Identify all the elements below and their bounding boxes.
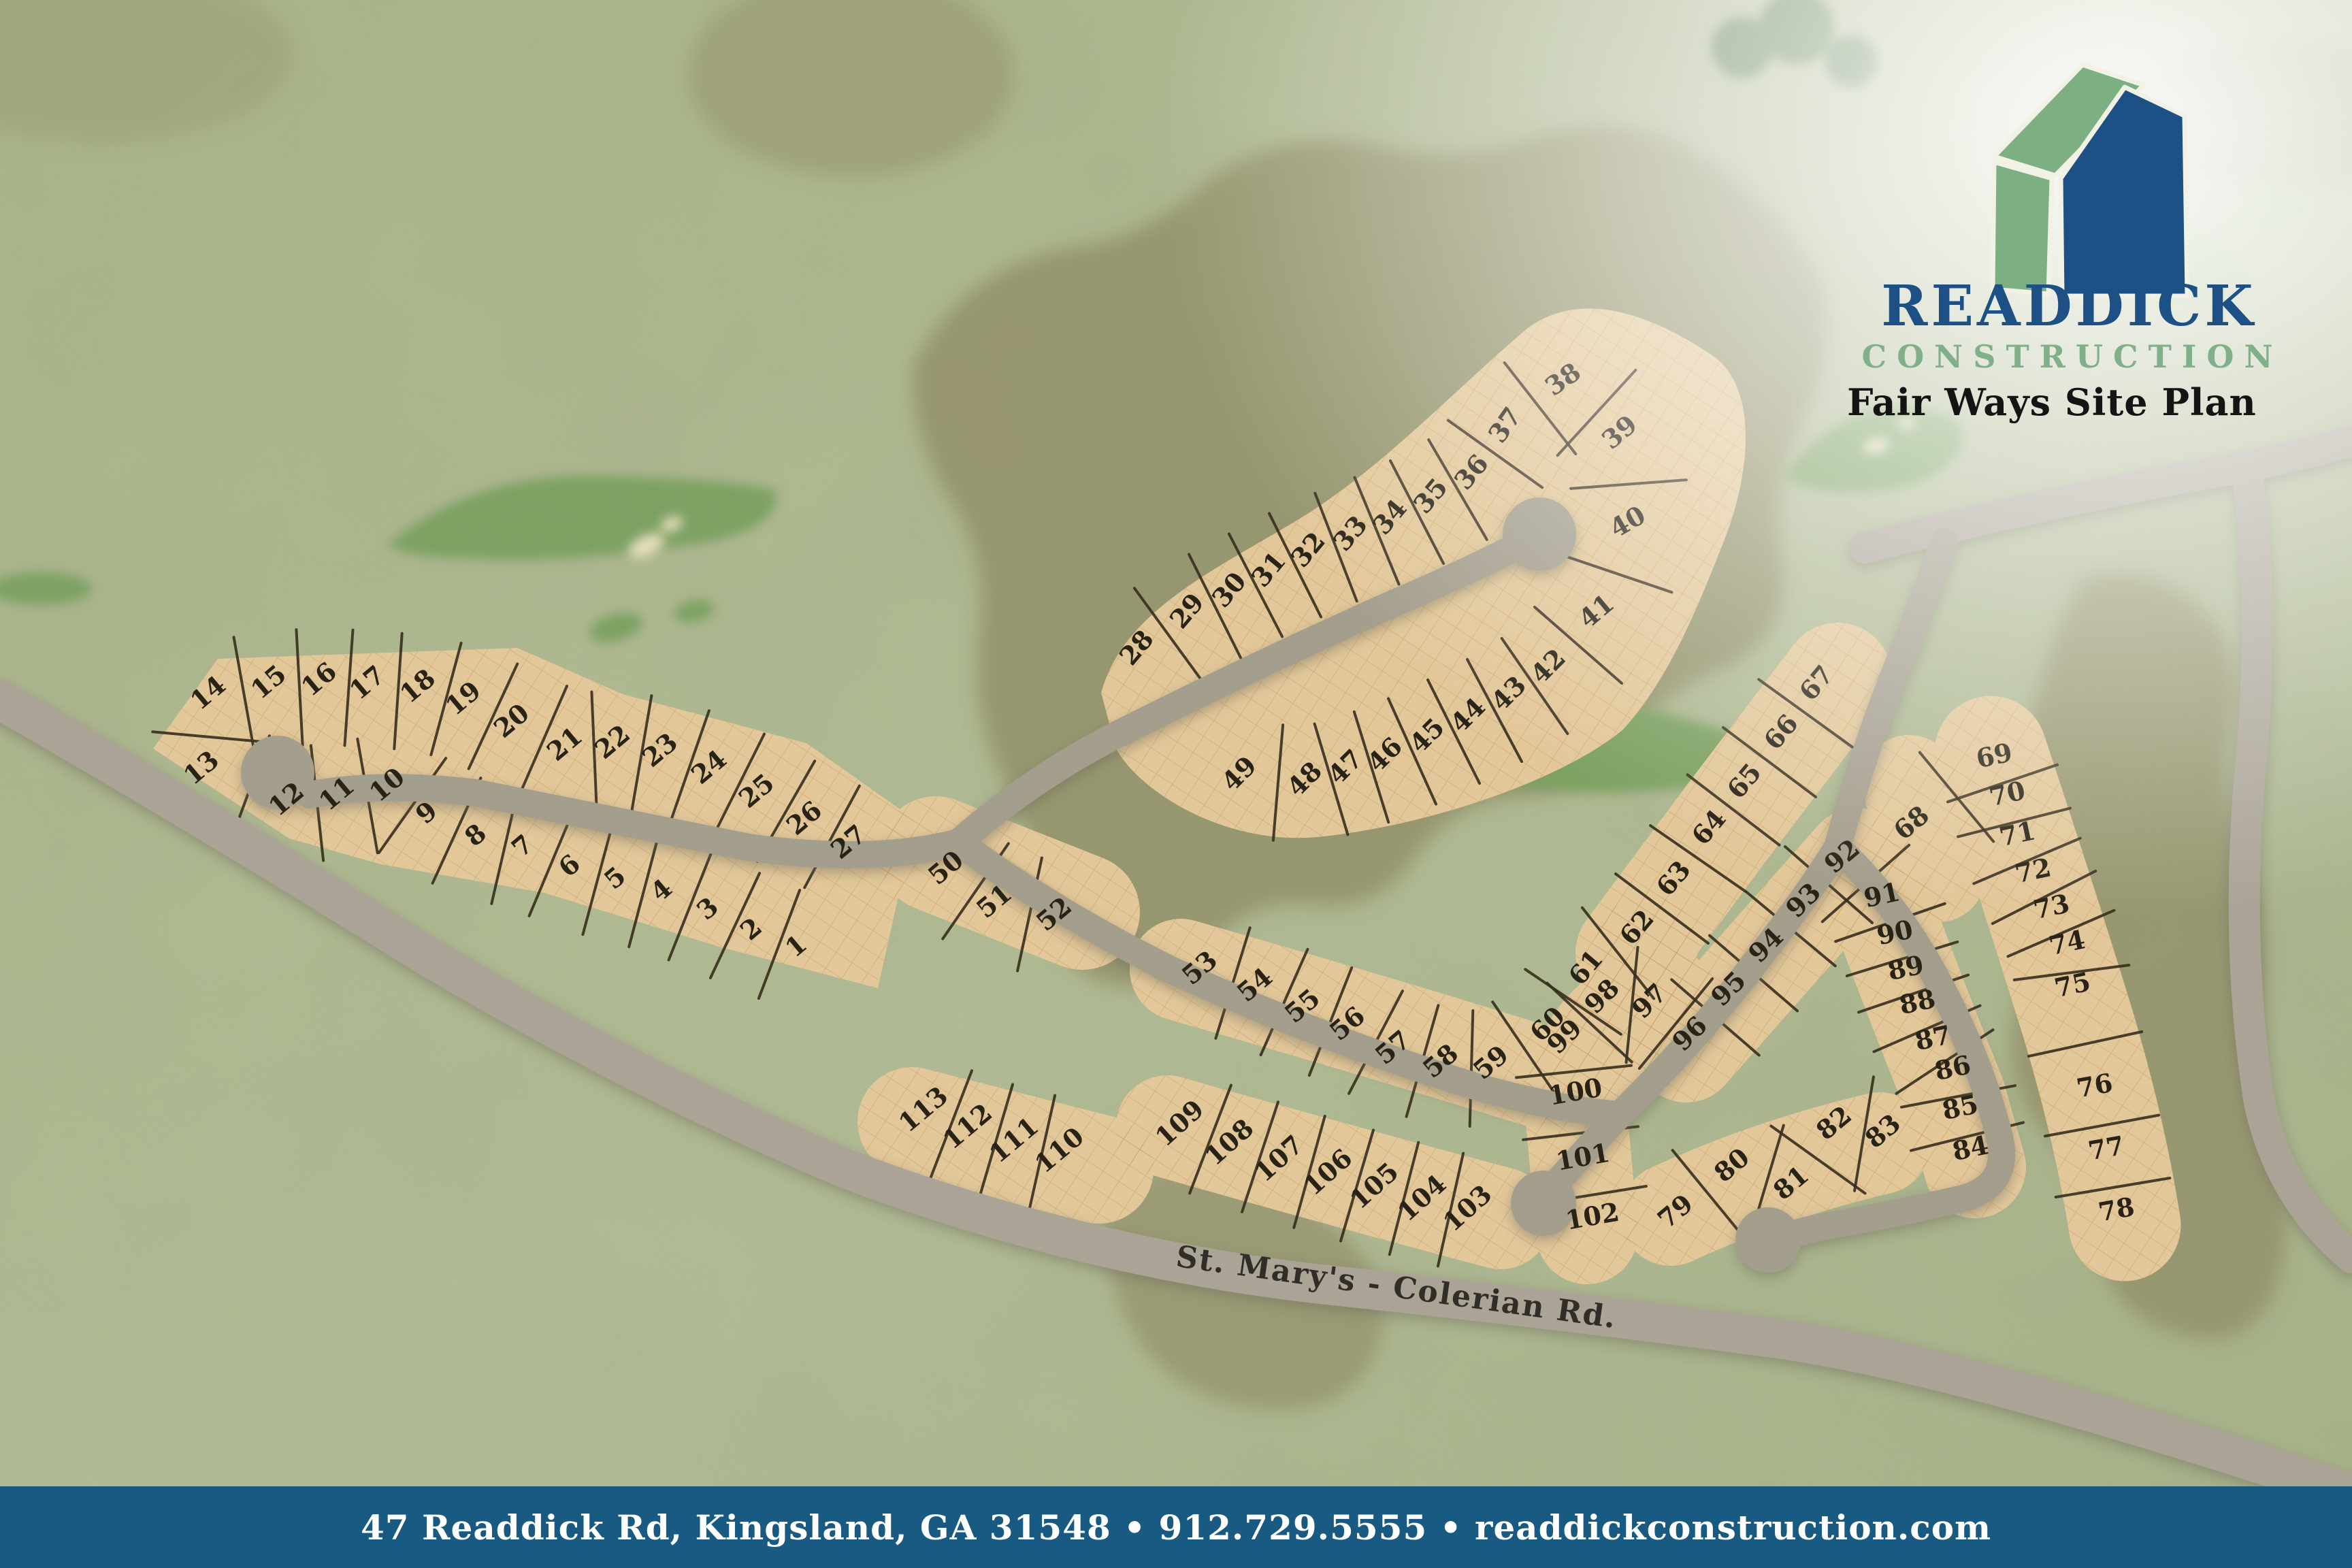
footer-bar: 47 Readdick Rd, Kingsland, GA 31548 • 91… [0,1486,2352,1568]
company-subname: CONSTRUCTION [1862,338,2283,375]
footer-contact-text: 47 Readdick Rd, Kingsland, GA 31548 • 91… [361,1507,1991,1548]
site-plan-map: St. Mary's - Colerian Rd. 12345678910111… [0,0,2352,1568]
site-plan-page: St. Mary's - Colerian Rd. 12345678910111… [0,0,2352,1568]
company-name: READDICK [1881,274,2256,339]
plan-title: Fair Ways Site Plan [1847,380,2257,424]
